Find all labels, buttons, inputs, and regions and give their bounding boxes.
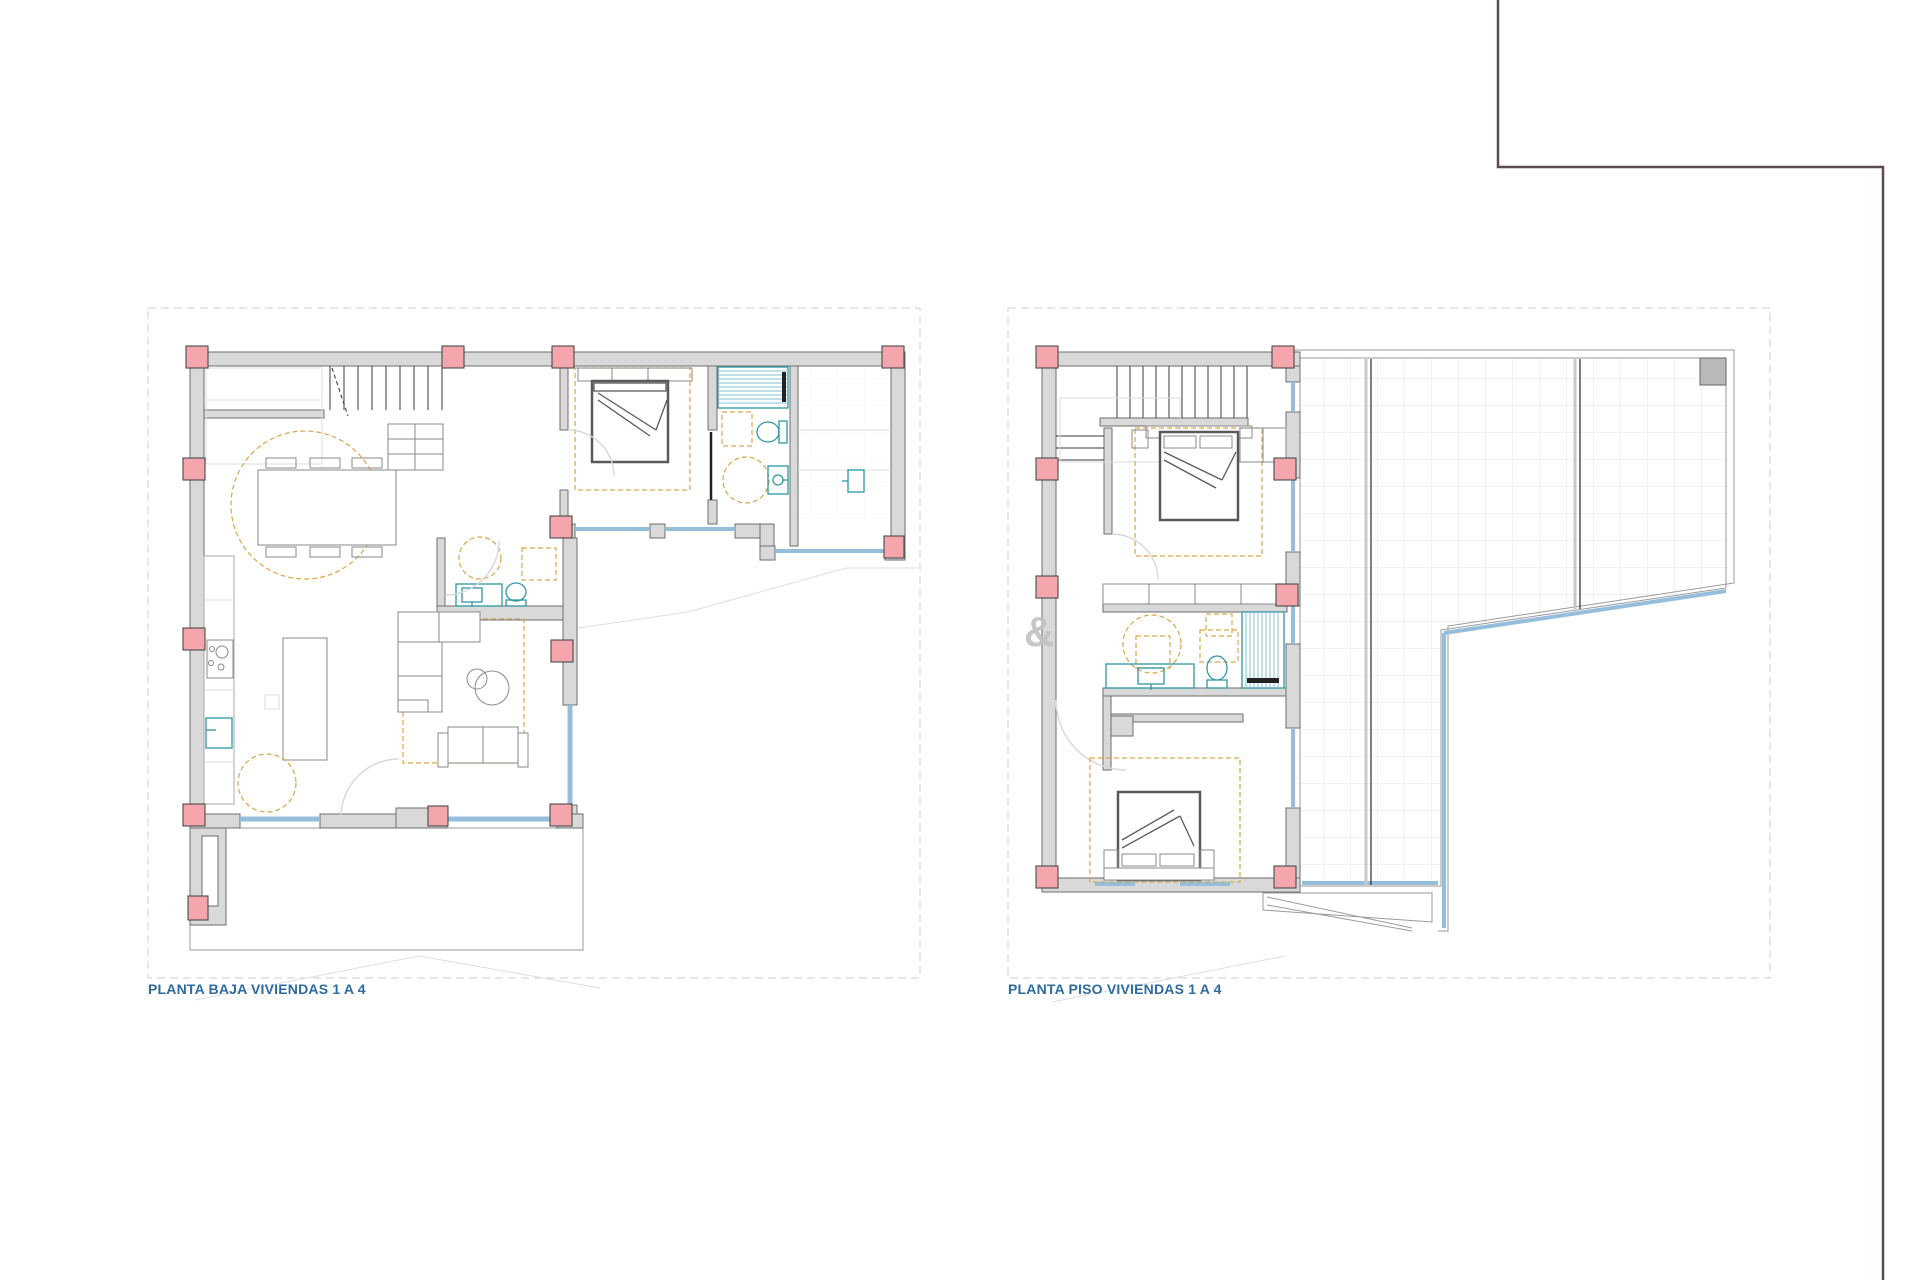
dining-area — [231, 431, 396, 579]
vanity-icon — [1106, 664, 1194, 690]
washbasin-icon — [456, 584, 502, 606]
watermark-text: & — [1024, 608, 1054, 656]
exterior-stair — [1263, 893, 1432, 931]
plan-planta-baja — [148, 308, 920, 1000]
kitchen — [204, 556, 327, 812]
porch-floor — [798, 368, 890, 522]
two-seat-sofa — [438, 727, 528, 767]
plan-label-planta-baja: PLANTA BAJA VIVIENDAS 1 A 4 — [148, 981, 366, 997]
double-bed — [1118, 792, 1200, 880]
plan-label-planta-piso: PLANTA PISO VIVIENDAS 1 A 4 — [1008, 981, 1222, 997]
floorplan-drawing — [0, 0, 1920, 1280]
living-room — [398, 612, 528, 767]
toilet-icon — [1207, 656, 1227, 688]
bathroom — [718, 367, 788, 503]
bedroom-2 — [1090, 758, 1240, 882]
drawing-sheet: PLANTA BAJA VIVIENDAS 1 A 4 PLANTA PISO … — [0, 0, 1920, 1280]
shower-icon — [1242, 612, 1284, 688]
wardrobe — [1240, 428, 1286, 462]
hall-wc — [456, 537, 556, 606]
bedroom-1 — [1112, 426, 1286, 580]
closet — [1103, 584, 1287, 604]
kitchen-counter — [204, 556, 234, 804]
terrain-line — [565, 568, 918, 630]
bedroom — [575, 368, 711, 500]
chimney — [1700, 358, 1726, 385]
plan-planta-piso — [1008, 308, 1770, 1002]
toilet-icon — [506, 583, 526, 606]
terrace — [1263, 350, 1734, 931]
sheet-frame — [1498, 0, 1883, 1280]
round-table-zone — [238, 754, 296, 812]
toilet-icon — [757, 421, 787, 443]
washbasin-icon — [768, 466, 788, 494]
l-sofa — [398, 612, 480, 712]
shower-icon — [718, 367, 788, 408]
stair-lower-flight — [388, 424, 443, 470]
deck-outline — [190, 828, 583, 950]
kitchen-island — [283, 638, 327, 760]
headboard — [578, 368, 692, 381]
dining-table — [258, 470, 396, 545]
double-bed — [1160, 432, 1238, 520]
